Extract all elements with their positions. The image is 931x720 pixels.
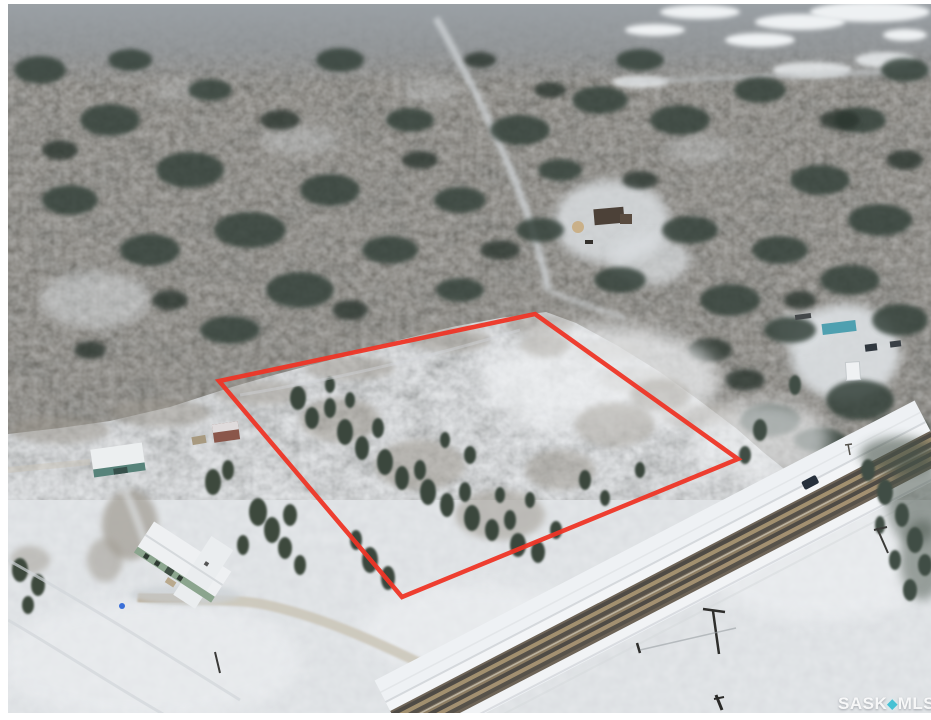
sask-mls-watermark: SASK◆MLS® <box>838 694 931 714</box>
watermark-sask-text: SASK <box>838 694 887 713</box>
listing-photo-frame: SASK◆MLS® <box>0 0 931 720</box>
red-shed <box>212 421 240 442</box>
mls-diamond-icon: ◆ <box>887 696 898 711</box>
aerial-photo <box>0 0 931 720</box>
watermark-mls-text: MLS <box>898 694 931 713</box>
blue-barrel <box>119 603 125 609</box>
